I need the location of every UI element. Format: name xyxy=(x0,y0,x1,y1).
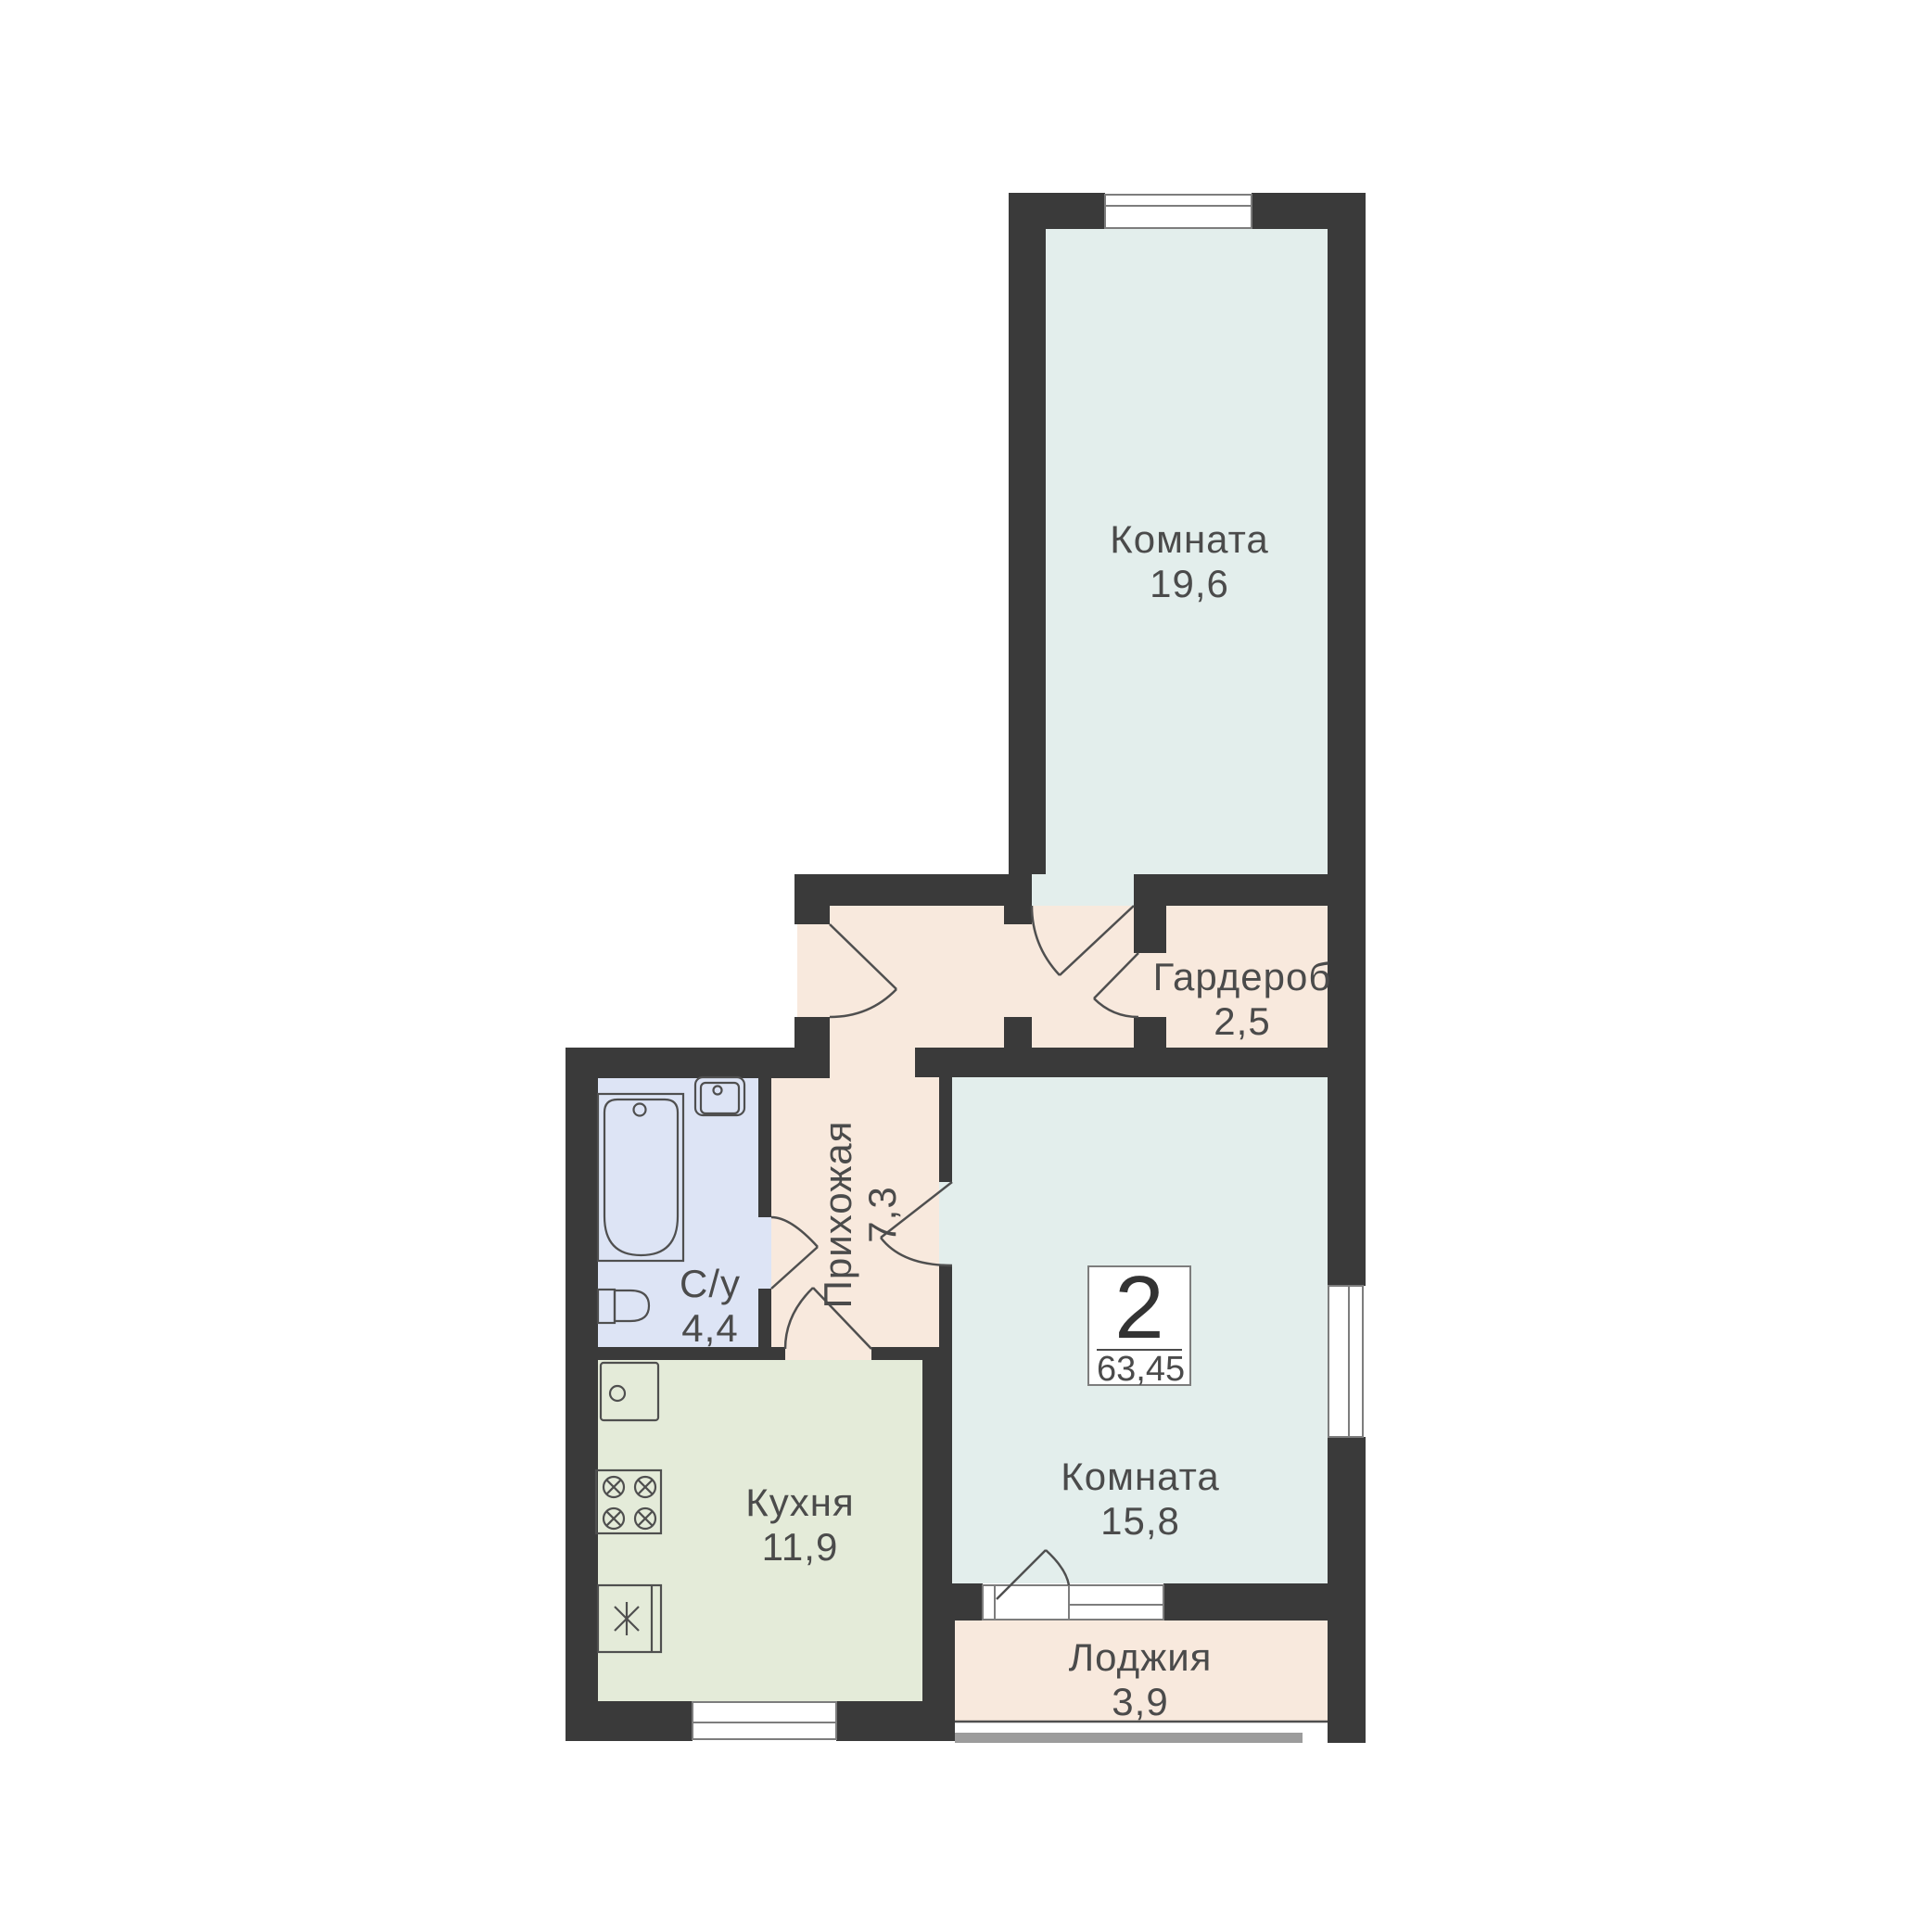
room-area: 15,8 xyxy=(1001,1499,1279,1544)
room-name: Комната xyxy=(1110,517,1268,561)
room-main-door-gap xyxy=(939,1182,952,1265)
room-area: 3,9 xyxy=(1001,1680,1279,1724)
hallway-floor-horizontal xyxy=(830,906,1134,1048)
room-name: Гардероб xyxy=(1153,955,1332,998)
wall-segment xyxy=(1134,874,1366,906)
wall-segment xyxy=(1009,193,1046,874)
floor-plan: Комната 19,6 Гардероб 2,5 Прихожая 7,3 С… xyxy=(0,0,1932,1932)
label-hallway: Прихожая 7,3 xyxy=(816,1075,905,1354)
room-area: 4,4 xyxy=(617,1306,803,1351)
apartment-total-area: 63,45 xyxy=(1097,1349,1182,1388)
wall-segment xyxy=(836,1701,922,1741)
room-area: 2,5 xyxy=(1103,999,1381,1044)
room-name: С/у xyxy=(680,1262,741,1305)
wall-segment xyxy=(1328,1437,1366,1743)
balcony-door-window xyxy=(983,1585,1163,1620)
room-area: 7,3 xyxy=(860,1075,905,1354)
label-loggia: Лоджия 3,9 xyxy=(1001,1635,1279,1724)
wall-segment xyxy=(1328,193,1366,1286)
wall-segment xyxy=(1134,906,1166,953)
wall-segment xyxy=(939,1048,952,1182)
wall-segment xyxy=(566,1048,830,1078)
apartment-rooms-count: 2 xyxy=(1114,1267,1163,1347)
apartment-badge: 2 63,45 xyxy=(1087,1265,1191,1386)
window xyxy=(693,1702,836,1739)
wall-segment xyxy=(915,1048,1328,1077)
label-bathroom: С/у 4,4 xyxy=(617,1262,803,1351)
wall-segment xyxy=(1163,1583,1328,1621)
room-name: Прихожая xyxy=(816,1121,859,1309)
wall-segment xyxy=(939,1583,983,1621)
room-area: 11,9 xyxy=(661,1525,939,1570)
wall-segment xyxy=(794,874,830,924)
window xyxy=(1105,195,1252,228)
window xyxy=(1328,1286,1363,1437)
wall-segment xyxy=(566,1078,598,1741)
wall-segment xyxy=(939,1265,952,1360)
label-kitchen: Кухня 11,9 xyxy=(661,1481,939,1570)
wall-segment xyxy=(566,1701,693,1741)
label-wardrobe: Гардероб 2,5 xyxy=(1103,955,1381,1044)
room-name: Кухня xyxy=(745,1481,854,1524)
label-room-top: Комната 19,6 xyxy=(1050,517,1328,606)
label-room-main: Комната 15,8 xyxy=(1001,1455,1279,1544)
entrance-door-gap xyxy=(797,924,830,1017)
room-top-door-gap xyxy=(1032,874,1134,906)
loggia-railing xyxy=(955,1733,1303,1743)
wall-segment xyxy=(1004,1017,1032,1048)
hallway-floor-horizontal2 xyxy=(830,1048,915,1077)
room-name: Комната xyxy=(1061,1455,1219,1498)
wall-segment xyxy=(794,874,1032,906)
room-name: Лоджия xyxy=(1069,1635,1213,1679)
wall-segment xyxy=(758,1078,771,1217)
room-area: 19,6 xyxy=(1050,562,1328,606)
